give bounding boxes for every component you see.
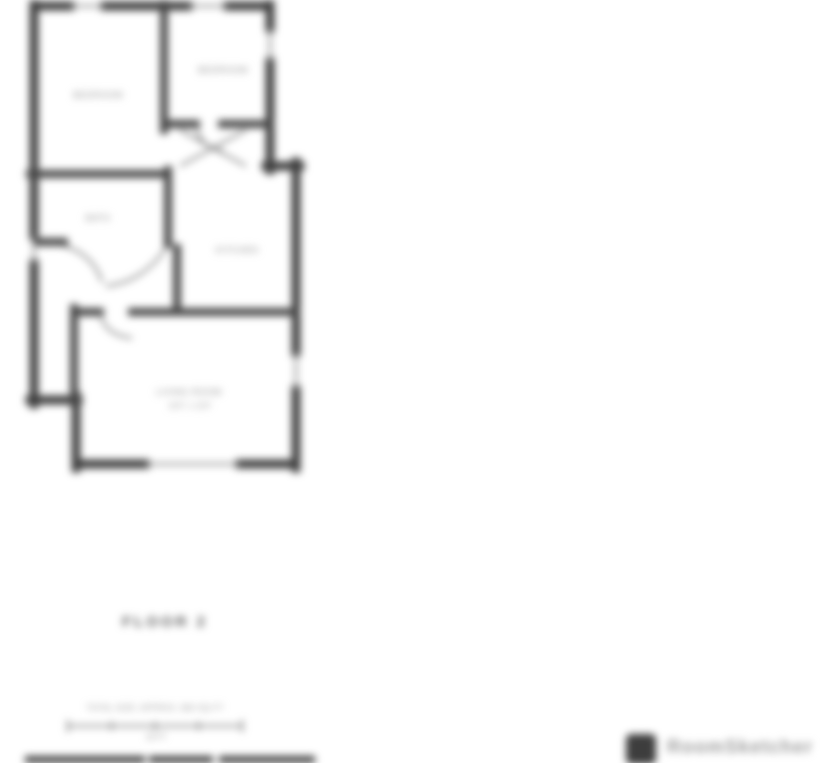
room-label-living-room: LIVING ROOM [156,387,222,397]
room-label-bath: BATH [85,213,110,223]
scale-bar [68,720,242,732]
room-label-kitchen: KITCHEN [215,245,258,255]
stairs-icon [180,130,246,166]
floor-caption: FLOOR 2 [122,614,208,631]
scale-length-label: 16 FT [146,733,167,742]
room-label-bedroom-1: BEDROOM [73,90,123,100]
room-label-bedroom-2: BEDROOM [198,65,248,75]
screenshot-canvas: BEDROOM BEDROOM BATH KITCHEN LIVING ROOM… [0,0,825,763]
brand-wordmark: RoomSketcher [667,733,813,763]
floor-plan-drawing [0,0,825,763]
blurred-content: BEDROOM BEDROOM BATH KITCHEN LIVING ROOM… [0,0,825,763]
interior-walls [30,2,296,402]
floorplan-logo-icon [626,734,656,763]
room-dimensions-living-room: 19'0" x 13'6" [168,402,212,411]
scale-note: TOTAL SIZE: APPROX. 860 SQ FT [86,704,223,713]
